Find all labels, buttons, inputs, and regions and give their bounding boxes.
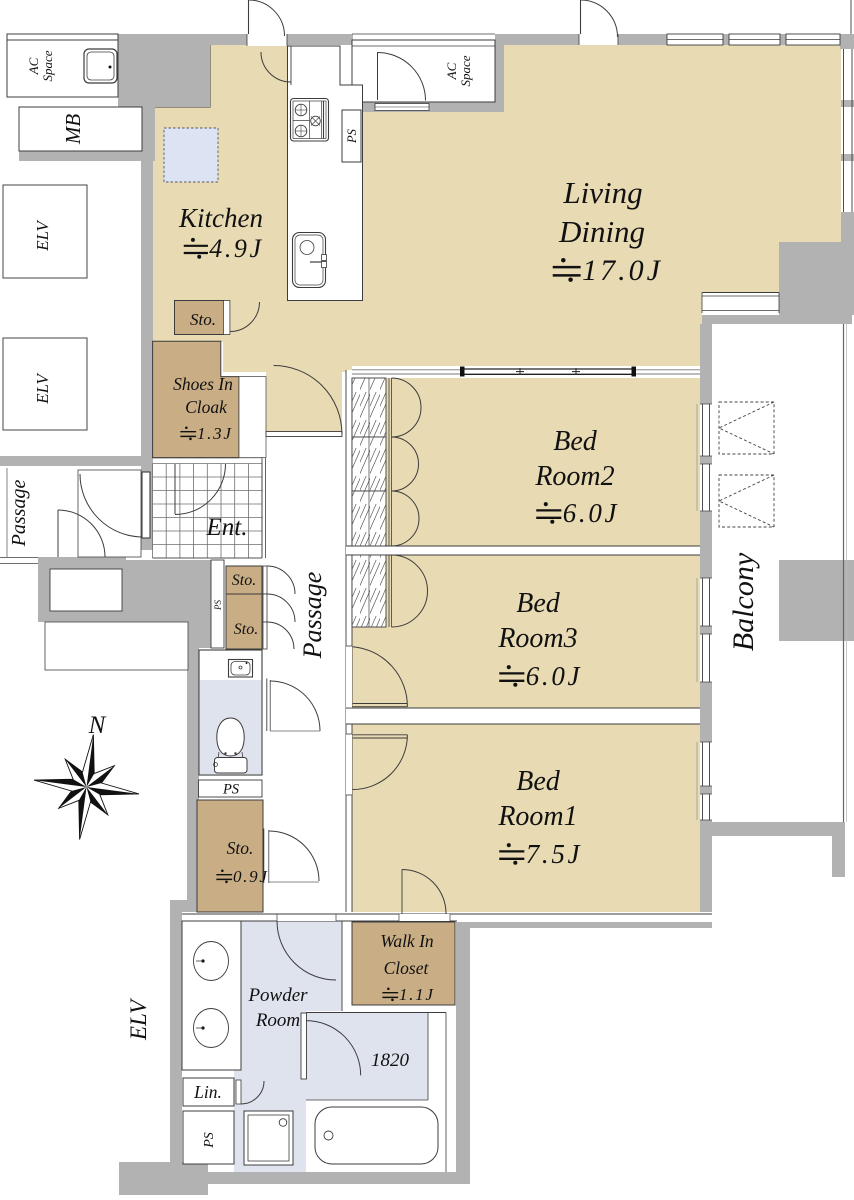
svg-text:ELV: ELV [126, 997, 151, 1041]
svg-text:4.9J: 4.9J [209, 234, 263, 263]
svg-text:Sto.: Sto. [232, 572, 256, 589]
svg-text:AC: AC [444, 62, 459, 80]
svg-text:Sto.: Sto. [227, 838, 254, 858]
svg-text:PS: PS [202, 1132, 217, 1149]
svg-text:N: N [88, 712, 107, 739]
svg-text:Dining: Dining [558, 214, 645, 249]
svg-text:Shoes In: Shoes In [173, 374, 233, 394]
svg-text:PS: PS [213, 600, 223, 611]
svg-text:Bed: Bed [516, 766, 561, 797]
svg-text:Space: Space [40, 50, 55, 81]
svg-text:Sto.: Sto. [234, 621, 258, 638]
svg-text:1.3J: 1.3J [197, 424, 233, 443]
svg-text:Space: Space [458, 55, 473, 86]
svg-text:MB: MB [61, 114, 85, 145]
svg-text:ELV: ELV [33, 372, 52, 405]
svg-text:PS: PS [222, 782, 240, 798]
svg-text:Bed: Bed [553, 426, 598, 457]
svg-text:17.0J: 17.0J [582, 254, 663, 287]
svg-text:Cloak: Cloak [185, 397, 228, 417]
svg-text:1.1J: 1.1J [399, 985, 435, 1004]
svg-text:AC: AC [26, 57, 41, 75]
svg-text:0.9J: 0.9J [233, 867, 269, 886]
svg-text:Powder: Powder [247, 985, 308, 1006]
svg-text:Room1: Room1 [497, 801, 577, 832]
svg-text:Kitchen: Kitchen [178, 203, 263, 233]
svg-text:Lin.: Lin. [193, 1082, 222, 1102]
svg-text:Closet: Closet [384, 958, 430, 978]
svg-text:Passage: Passage [298, 572, 327, 660]
svg-text:Passage: Passage [8, 480, 30, 548]
svg-text:Ent.: Ent. [206, 514, 248, 541]
svg-text:Balcony: Balcony [727, 552, 760, 651]
svg-text:Room2: Room2 [534, 461, 614, 492]
svg-text:Living: Living [562, 175, 642, 210]
svg-text:6.0J: 6.0J [563, 498, 620, 528]
svg-text:7.5J: 7.5J [526, 839, 583, 869]
svg-text:ELV: ELV [33, 219, 52, 252]
svg-text:Room3: Room3 [497, 623, 577, 654]
svg-text:6.0J: 6.0J [526, 661, 583, 691]
svg-text:Room: Room [255, 1010, 300, 1031]
svg-text:PS: PS [345, 128, 359, 144]
svg-text:Bed: Bed [516, 588, 561, 619]
svg-text:Sto.: Sto. [190, 310, 216, 329]
svg-text:1820: 1820 [371, 1050, 410, 1071]
svg-text:Walk In: Walk In [380, 931, 434, 951]
